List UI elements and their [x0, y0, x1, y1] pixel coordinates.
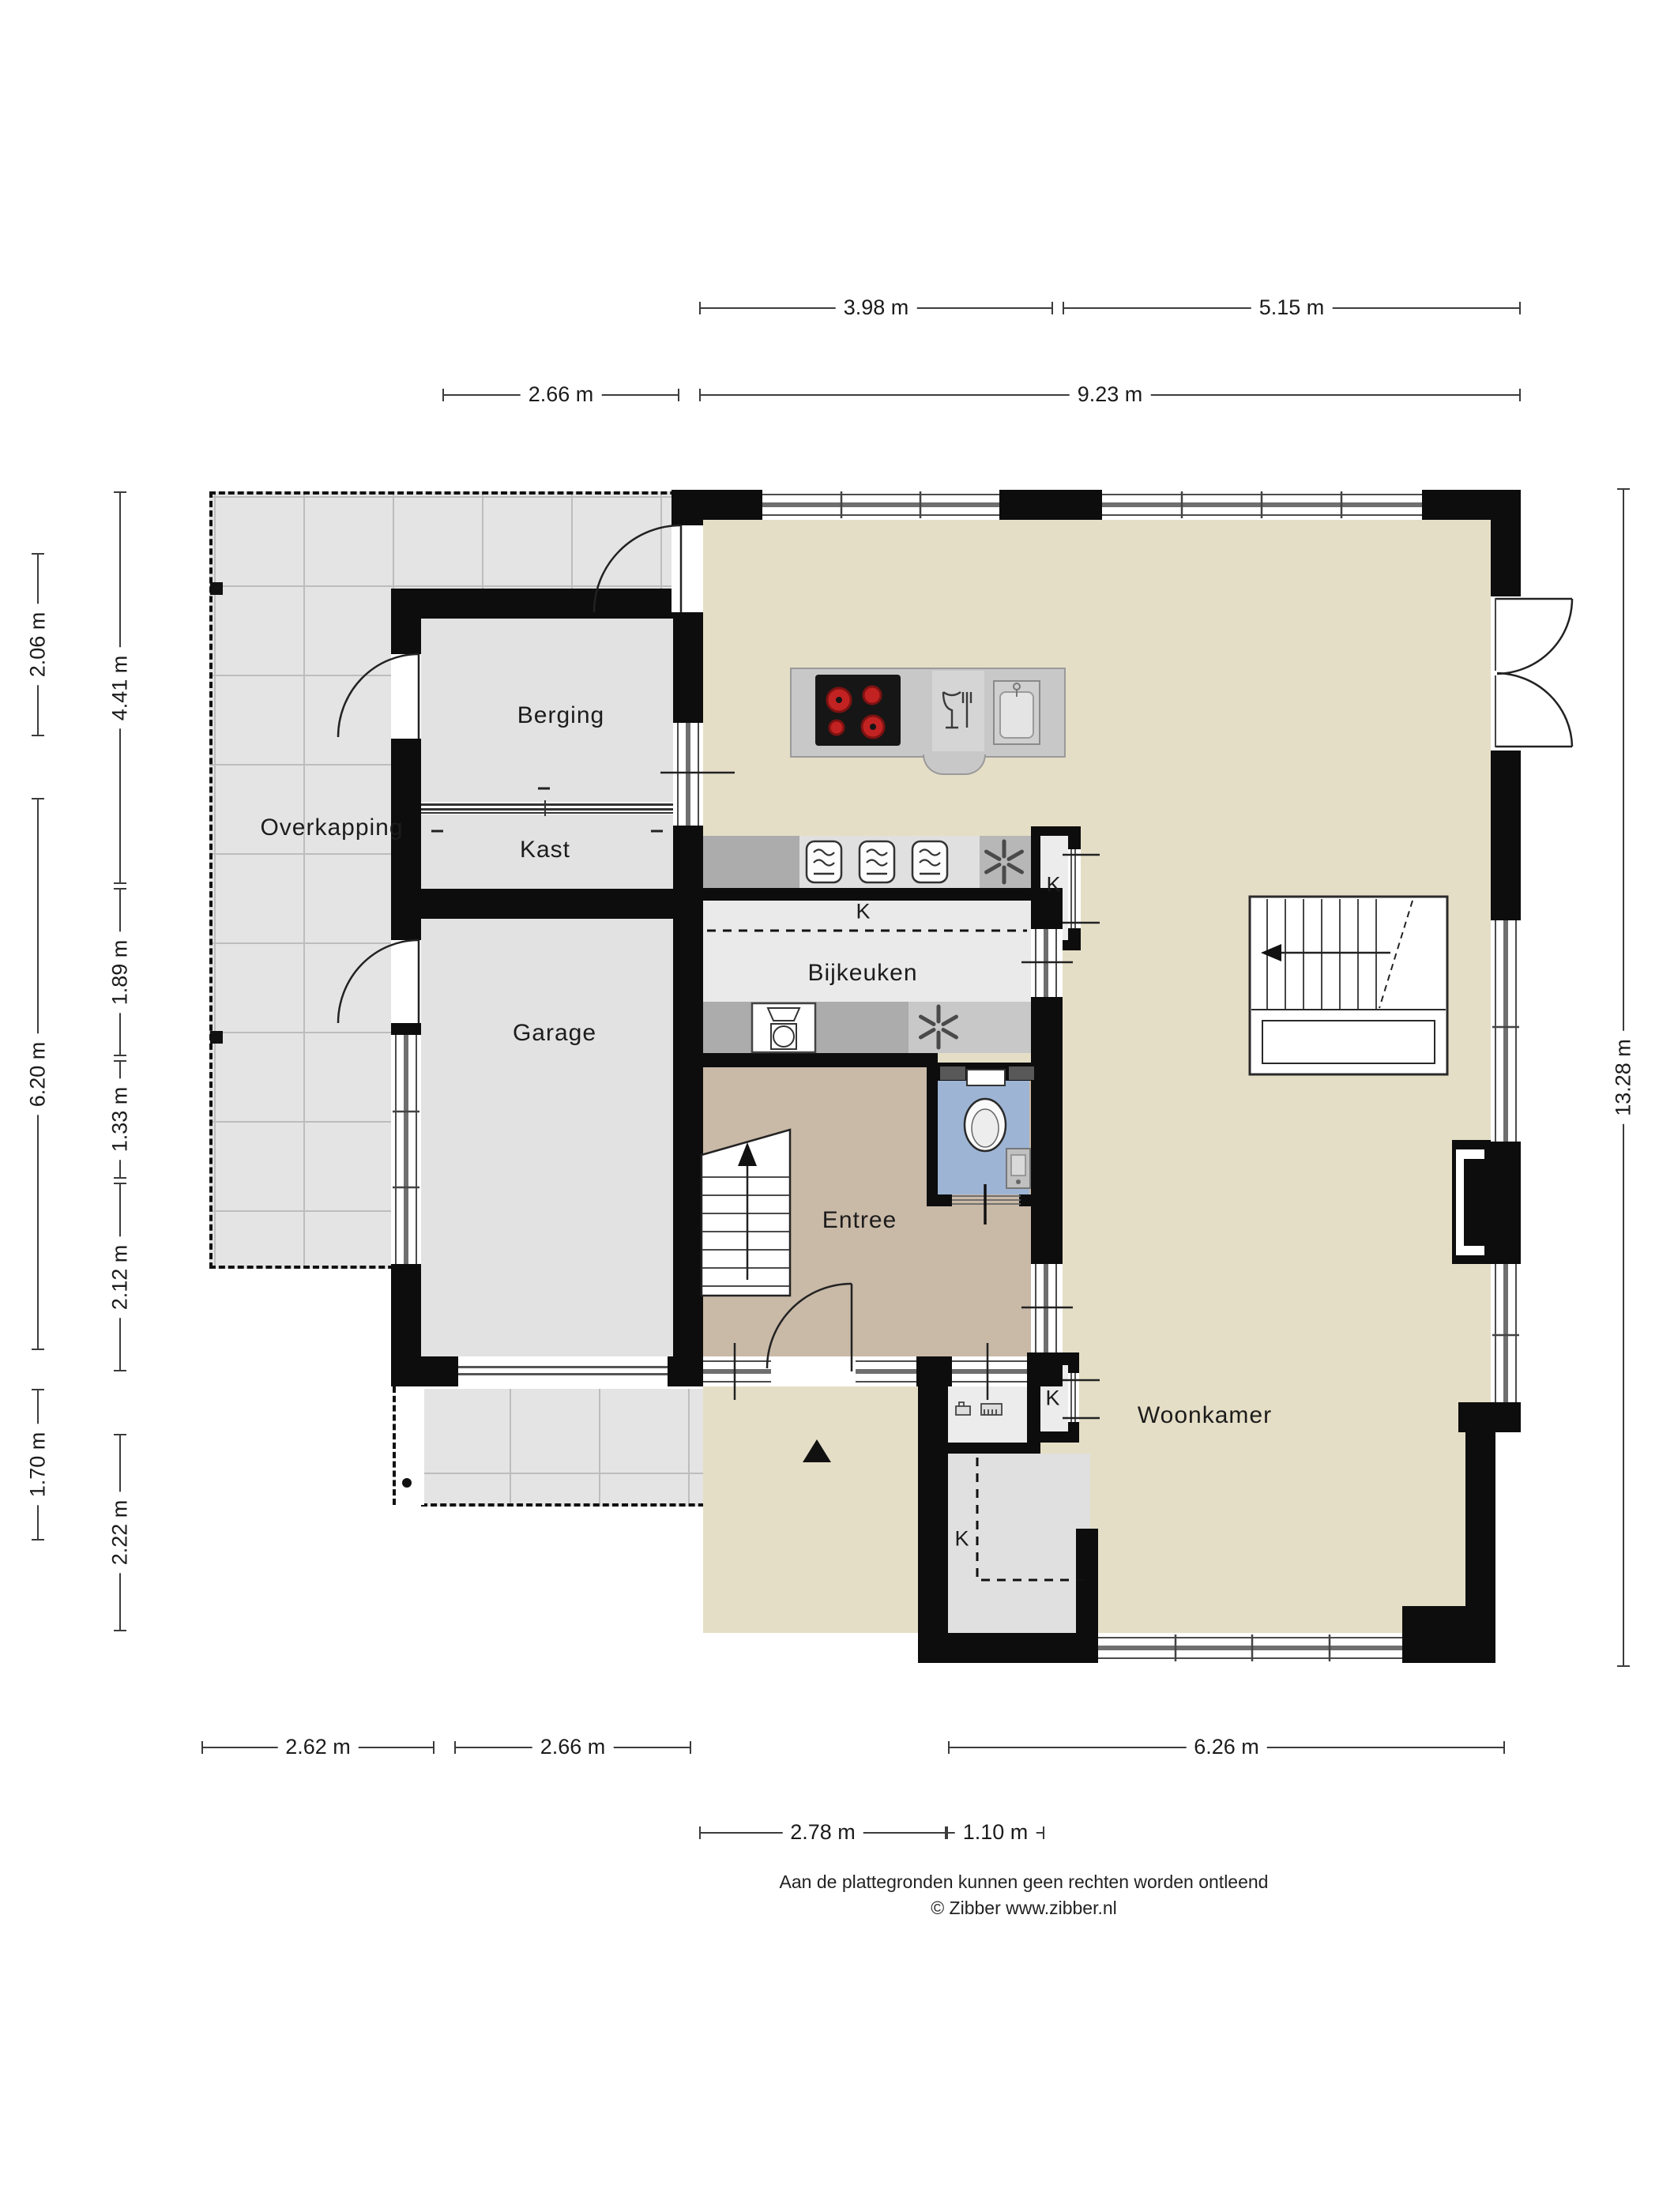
dimension-label: 6.26 m	[1186, 1735, 1267, 1759]
dimension-label: 1.89 m	[108, 931, 133, 1013]
dimension-label: 4.41 m	[108, 647, 133, 728]
window	[703, 1356, 771, 1386]
room-label-entree: Entree	[822, 1207, 897, 1234]
room-label-closet-under-stairs: K	[954, 1527, 969, 1552]
wall	[1068, 1352, 1079, 1373]
sliding-door	[421, 802, 673, 814]
room-label-kast: Kast	[520, 837, 570, 863]
wall	[1076, 1529, 1098, 1633]
french-door-opening	[1491, 596, 1521, 750]
window	[1102, 490, 1422, 520]
wall	[391, 1023, 421, 1035]
dimension-label: 2.66 m	[521, 382, 602, 407]
meter-cupboard-floor	[948, 1386, 1027, 1443]
dimension-label: 1.70 m	[26, 1424, 51, 1506]
dimension-label: 2.06 m	[26, 604, 51, 686]
wall	[1068, 826, 1081, 849]
window	[1068, 1373, 1079, 1422]
fireplace-core	[1464, 1159, 1521, 1246]
dimension-label: 3.98 m	[836, 295, 917, 320]
wall	[1027, 1356, 1063, 1386]
wall	[1458, 1402, 1521, 1432]
room-label-garage: Garage	[513, 1020, 596, 1047]
window	[1491, 1264, 1521, 1402]
kitchen-fan-tile	[980, 836, 1031, 888]
room-label-closet-hall: K	[1045, 1386, 1060, 1411]
room-garage-floor	[421, 919, 673, 1356]
porch-strip	[393, 1386, 424, 1505]
room-label-berging: Berging	[517, 702, 604, 729]
room-label-overkapping: Overkapping	[260, 814, 403, 841]
window	[1031, 1264, 1063, 1352]
door-opening	[391, 940, 421, 1023]
floorplan-page: Aan de plattegronden kunnen geen rechten…	[0, 0, 1659, 2212]
door-opening	[671, 525, 703, 612]
kitchen-appliance-panel	[799, 836, 980, 888]
dimension-label: 2.22 m	[108, 1492, 133, 1574]
wall	[927, 1194, 952, 1206]
dimension-label: 2.66 m	[532, 1735, 614, 1759]
wall	[1031, 997, 1063, 1053]
wall	[391, 619, 421, 654]
window	[856, 1356, 916, 1386]
utility-counter-light	[908, 1002, 1031, 1053]
copyright-line: © Zibber www.zibber.nl	[708, 1895, 1340, 1921]
window	[762, 490, 999, 520]
window	[673, 723, 703, 826]
dimension-label: 6.20 m	[26, 1033, 51, 1115]
wall	[1019, 1194, 1040, 1206]
dimension-label: 1.33 m	[108, 1079, 133, 1161]
wall	[916, 1356, 952, 1386]
wall	[1068, 928, 1081, 950]
dimension-label: 1.10 m	[955, 1820, 1036, 1845]
wall	[1031, 1206, 1063, 1264]
wall	[703, 1053, 927, 1067]
wall	[421, 889, 703, 919]
wall	[673, 612, 703, 723]
front-door-opening	[771, 1356, 856, 1386]
dimension-label: 2.62 m	[277, 1735, 359, 1759]
kitchen-island-dishwasher-tile	[932, 671, 984, 751]
wall	[927, 1063, 1040, 1081]
window	[1068, 849, 1081, 928]
wall	[999, 490, 1102, 520]
room-toilet-floor	[938, 1081, 1029, 1194]
window	[952, 1356, 1027, 1386]
room-label-closet-bijkeuken: K	[856, 900, 871, 924]
window	[391, 1035, 421, 1264]
disclaimer-line1: Aan de plattegronden kunnen geen rechten…	[708, 1869, 1340, 1895]
door-opening	[391, 654, 421, 739]
dimension-label: 5.15 m	[1251, 295, 1333, 320]
wall	[668, 1356, 703, 1386]
wall	[1491, 490, 1521, 596]
wall	[673, 490, 762, 520]
room-label-closet-kitchen: K	[1046, 873, 1061, 897]
window	[1031, 929, 1063, 997]
wall	[1491, 750, 1521, 920]
wall	[1465, 1432, 1495, 1633]
wall	[918, 1443, 1040, 1454]
wall	[918, 1379, 948, 1663]
wall	[1027, 1431, 1079, 1443]
dimension-label: 2.78 m	[782, 1820, 863, 1845]
window	[1491, 920, 1521, 1142]
kitchen-island	[790, 668, 1066, 758]
dimension-label: 2.12 m	[108, 1236, 133, 1318]
garage-door	[458, 1361, 668, 1382]
dimension-label: 13.28 m	[1612, 1031, 1636, 1124]
room-label-woonkamer: Woonkamer	[1138, 1402, 1272, 1429]
wall	[391, 1264, 421, 1356]
window	[1098, 1633, 1402, 1663]
wall	[673, 826, 703, 1356]
wall	[391, 589, 673, 619]
dimension-label: 9.23 m	[1070, 382, 1151, 407]
disclaimer: Aan de plattegronden kunnen geen rechten…	[708, 1869, 1340, 1922]
room-label-bijkeuken: Bijkeuken	[807, 960, 917, 987]
wall	[1402, 1633, 1495, 1663]
wall	[391, 1356, 458, 1386]
